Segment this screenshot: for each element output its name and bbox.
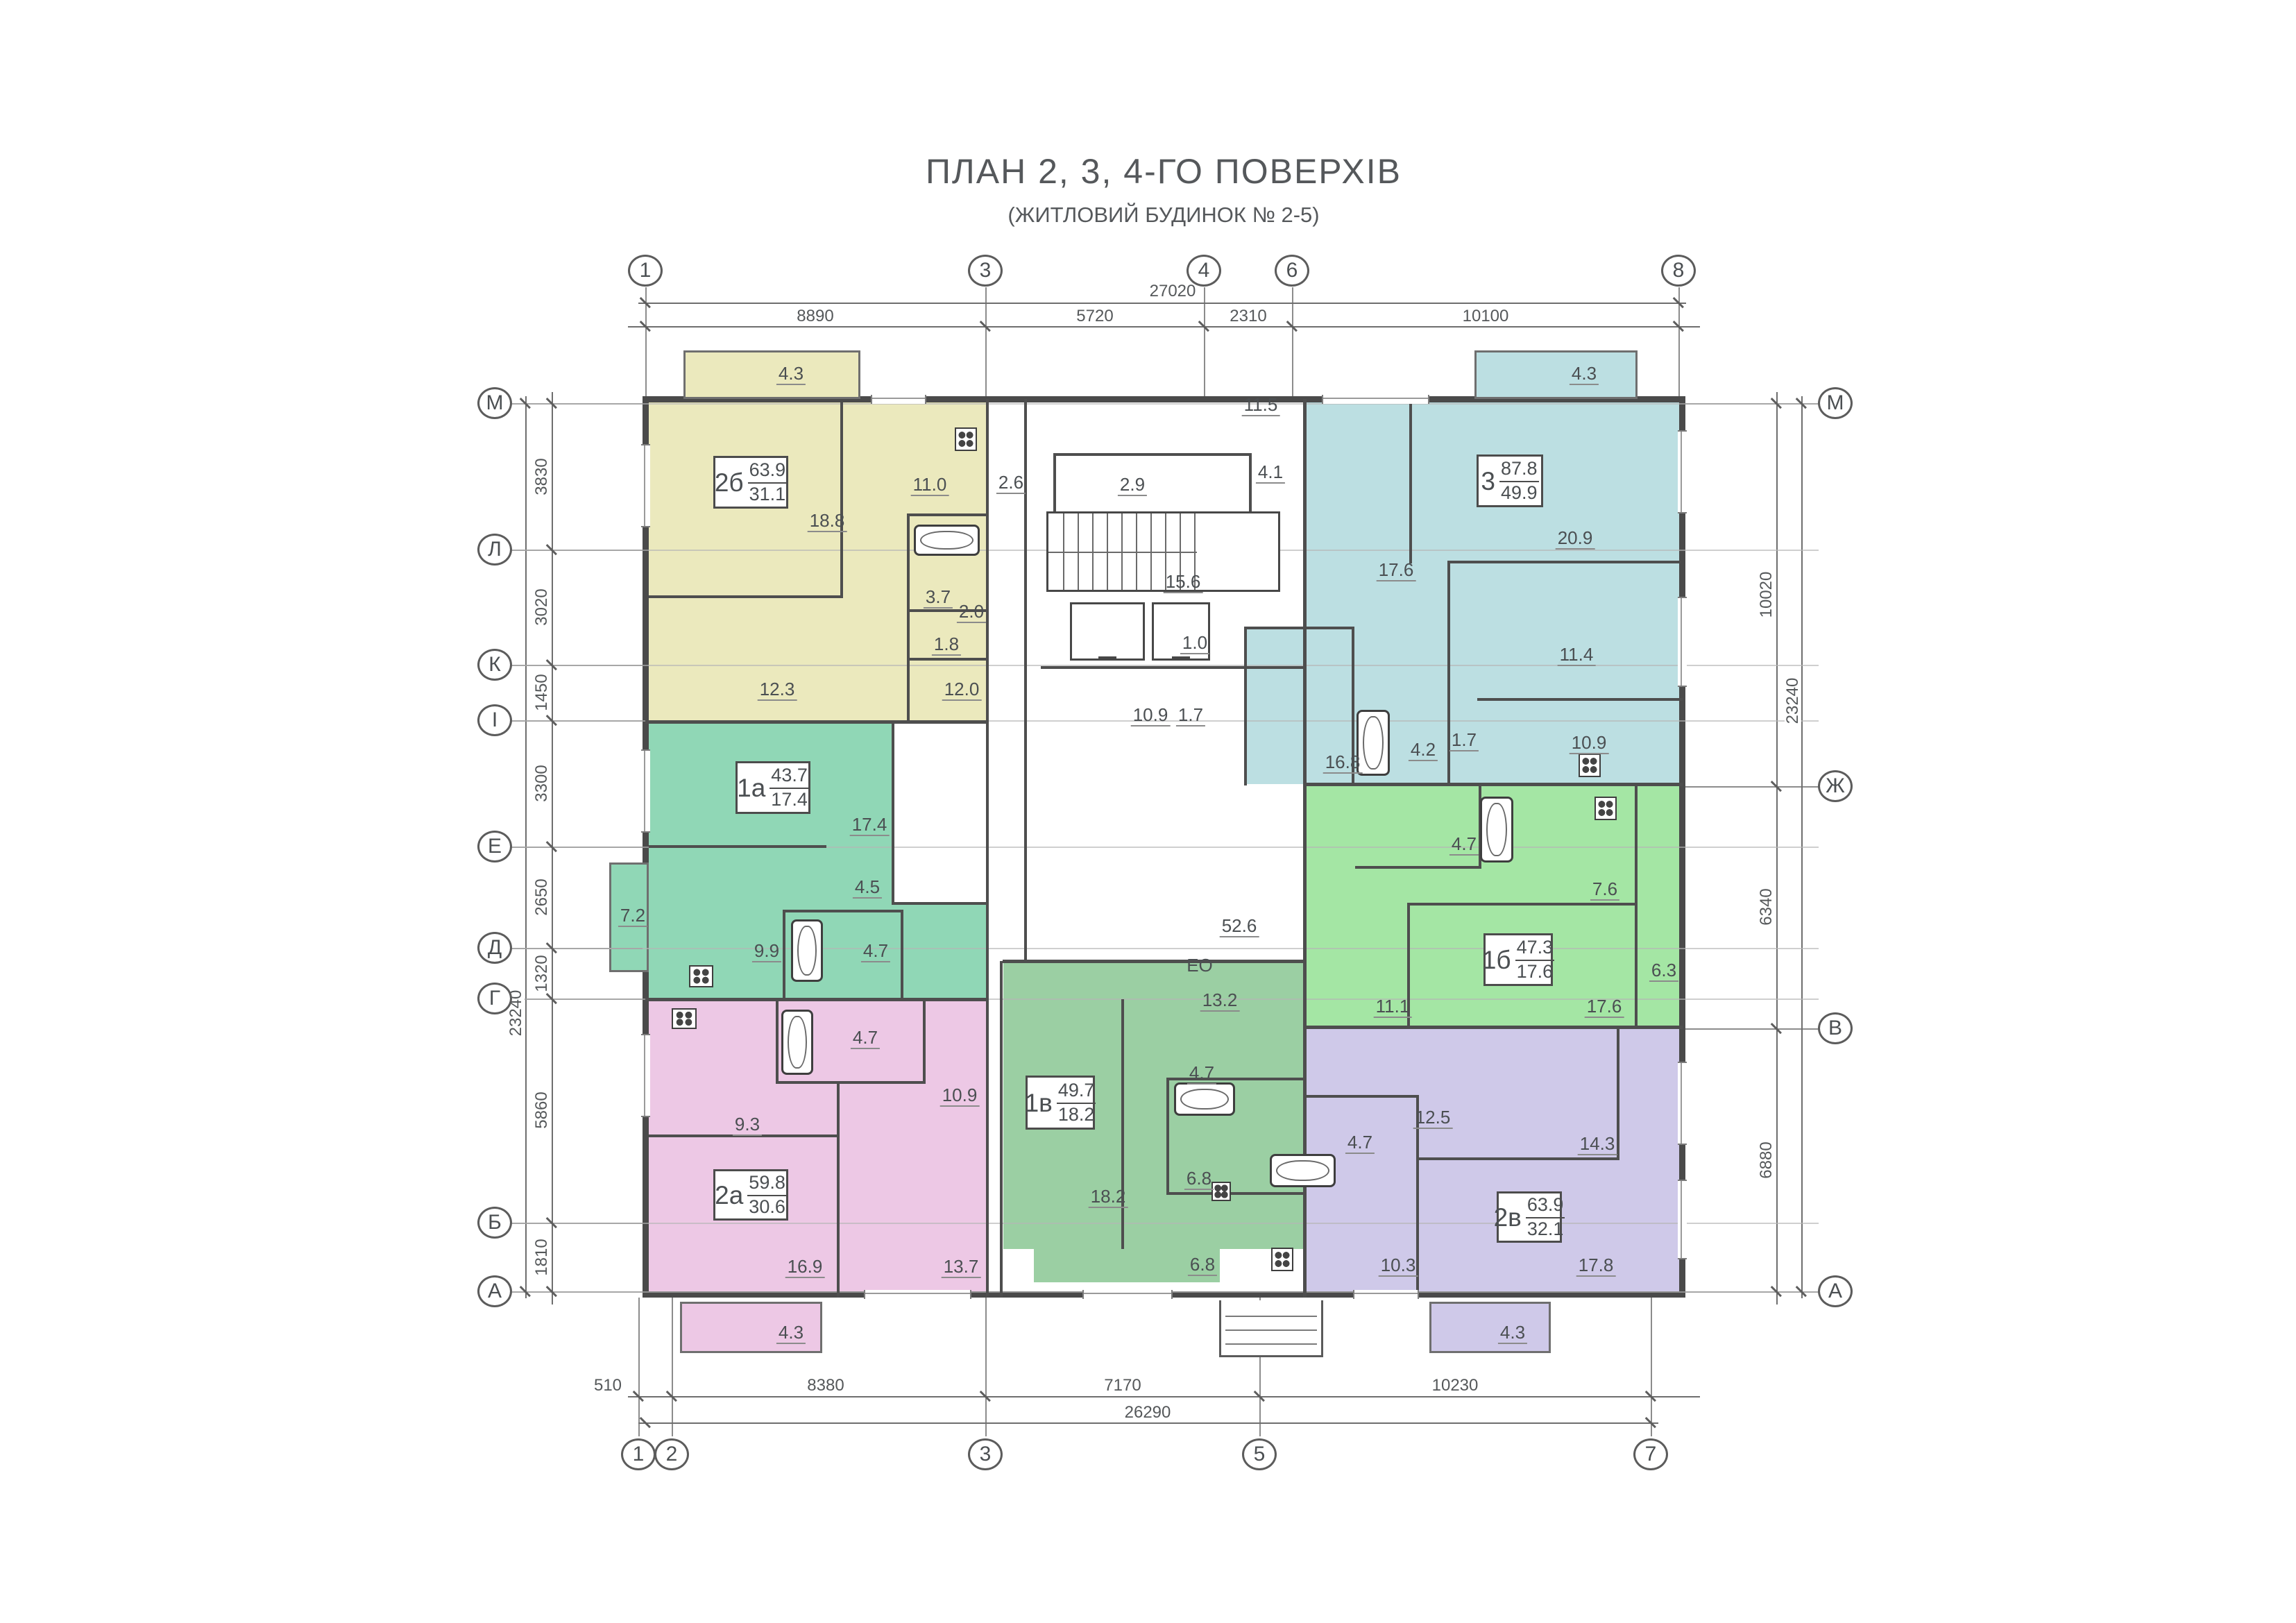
dim-line-top-segments: [628, 326, 1700, 328]
floor-plan-canvas: 4.34.34.34.37.218.811.03.71.82.012.312.0…: [0, 0, 2296, 1623]
axis-bubble-3: 3: [968, 1438, 1003, 1470]
room-area-label: 12.5: [1413, 1108, 1453, 1129]
dimension-label: 1320: [534, 953, 550, 994]
room-area-label: 6.8: [1184, 1169, 1214, 1190]
room-area-label: 2.6: [996, 473, 1026, 494]
wall: [1166, 1192, 1304, 1195]
wall: [1000, 961, 1003, 1298]
stair-landing-line: [1048, 552, 1197, 553]
room-area-label: 1.7: [1176, 706, 1205, 726]
wall: [649, 845, 826, 848]
dimension-label: 5720: [1074, 308, 1115, 325]
wall: [901, 910, 903, 1001]
room-area-label: 4.7: [1449, 835, 1479, 856]
wall: [907, 658, 989, 661]
room-area-label: 18.2: [1089, 1187, 1128, 1208]
room-area-label: 10.3: [1379, 1256, 1418, 1277]
room-area-label: 2.9: [1118, 475, 1147, 496]
stove-icon: [689, 965, 713, 987]
room-area-label: 9.9: [752, 942, 781, 962]
stove-icon: [1271, 1248, 1293, 1271]
room-area-label: 4.5: [853, 878, 882, 899]
wall: [1447, 561, 1681, 563]
wall: [1617, 1028, 1619, 1160]
apartment-code: 1б: [1482, 947, 1511, 973]
wall: [1307, 1095, 1419, 1098]
axis-bubble-Е: Е: [477, 831, 512, 863]
apartment-code: 2б: [715, 470, 744, 495]
dimension-label: 10230: [1430, 1377, 1481, 1394]
apt-3-area-ext: [1247, 629, 1309, 784]
axis-bubble-4: 4: [1187, 255, 1221, 287]
room-area-label: 4.7: [1187, 1064, 1216, 1085]
elevator-shaft: [1070, 602, 1145, 661]
dimension-label: 1450: [534, 672, 550, 713]
dim-line-top-total: [638, 303, 1686, 304]
room-area-label: 20.9: [1556, 529, 1595, 550]
axis-bubble-М: М: [1818, 387, 1853, 419]
room-area-label: 52.6: [1220, 917, 1259, 937]
room-area-label: 12.0: [942, 680, 982, 701]
axis-stub: [1651, 1298, 1652, 1436]
dimension-label: 3830: [534, 456, 550, 497]
wall: [1407, 903, 1636, 906]
wall: [892, 902, 989, 905]
room-area-label: 11.0: [911, 475, 949, 496]
bathtub-icon: [1174, 1082, 1235, 1116]
room-area-label: 10.9: [1131, 706, 1171, 726]
wall: [837, 1081, 840, 1298]
apartment-label-2а: 2а59.830.6: [713, 1169, 788, 1221]
room-area-label: 14.3: [1578, 1135, 1617, 1155]
room-area-label: 1.7: [1449, 731, 1479, 751]
apt-2b-area: [649, 402, 987, 722]
axis-bubble-8: 8: [1661, 255, 1696, 287]
wall: [776, 1001, 779, 1084]
axis-line-Б: [511, 1223, 1819, 1224]
axis-bubble-Д: Д: [477, 932, 512, 964]
axis-stub: [985, 1298, 987, 1436]
bathtub-icon: [791, 919, 823, 982]
dimension-label: 7170: [1102, 1377, 1143, 1394]
axis-bubble-2: 2: [654, 1438, 689, 1470]
axis-bubble-5: 5: [1242, 1438, 1277, 1470]
dimension-label: 3300: [534, 763, 550, 804]
dimension-label: 3020: [534, 586, 550, 627]
room-area-label: 16.9: [785, 1257, 825, 1278]
dimension-label: 10100: [1461, 308, 1511, 325]
drawing-sheet: { "page": { "title": "ПЛАН 2, 3, 4-ГО ПО…: [0, 0, 2296, 1623]
room-area-label: 6.3: [1649, 961, 1678, 982]
dimension-label: 2650: [534, 876, 550, 917]
wall: [840, 402, 843, 598]
room-area-label: 4.2: [1409, 740, 1438, 761]
room-area-label: 17.6: [1377, 561, 1416, 581]
wall: [907, 513, 989, 516]
axis-bubble-7: 7: [1633, 1438, 1668, 1470]
room-area-label: 11.4: [1558, 645, 1596, 666]
wall: [1307, 1026, 1683, 1029]
room-area-label: 11.1: [1374, 997, 1412, 1018]
axis-bubble-Ж: Ж: [1818, 770, 1853, 802]
axis-bubble-1: 1: [621, 1438, 656, 1470]
balcony-area-label: 4.3: [776, 364, 806, 385]
wall: [1249, 453, 1252, 511]
apartment-label-1в: 1в49.718.2: [1026, 1076, 1095, 1130]
dimension-label: 510: [592, 1377, 624, 1394]
axis-bubble-3: 3: [968, 255, 1003, 287]
bathtub-icon: [1270, 1154, 1336, 1187]
room-area-label: 17.8: [1576, 1256, 1616, 1277]
apartment-areas: 47.317.6: [1515, 937, 1555, 982]
axis-bubble-М: М: [477, 387, 512, 419]
stove-icon: [1211, 1182, 1231, 1201]
balcony-area-label: 4.3: [1498, 1323, 1527, 1344]
wall: [1244, 627, 1354, 629]
bathtub-icon: [1480, 797, 1513, 863]
apartment-label-1б: 1б47.317.6: [1483, 933, 1553, 986]
apartment-areas: 63.932.1: [1526, 1194, 1565, 1239]
axis-stub: [672, 1298, 673, 1436]
dimension-label: 23240: [1785, 676, 1801, 726]
dimension-label: 5860: [534, 1089, 550, 1130]
axis-line-М: [511, 403, 1819, 405]
axis-bubble-А: А: [477, 1275, 512, 1307]
bathtub-icon: [914, 525, 980, 556]
dim-line-bottom-total: [638, 1422, 1658, 1424]
room-area-label: 9.3: [733, 1115, 762, 1136]
apartment-areas: 49.718.2: [1057, 1080, 1096, 1125]
apartment-code: 2а: [715, 1182, 743, 1208]
wall: [1244, 627, 1247, 785]
wall: [1166, 1078, 1169, 1195]
balcony-area-label: 4.3: [1570, 364, 1599, 385]
room-area-label: 4.7: [1345, 1133, 1375, 1154]
dimension-label: 6340: [1758, 886, 1775, 927]
room-area-label: ЕО: [1184, 956, 1215, 976]
wall: [1121, 999, 1124, 1249]
room-area-label: 18.8: [808, 511, 847, 532]
axis-stub: [1685, 786, 1819, 788]
window: [1353, 1290, 1419, 1299]
axis-bubble-В: В: [1818, 1012, 1853, 1044]
room-area-label: 7.6: [1590, 880, 1619, 901]
stove-icon: [672, 1008, 697, 1029]
wall: [783, 910, 785, 1001]
wall: [649, 595, 843, 598]
stove-icon: [1579, 754, 1601, 777]
wall: [1041, 666, 1304, 669]
axis-bubble-К: К: [477, 649, 512, 681]
axis-bubble-1: 1: [628, 255, 663, 287]
entrance-porch: [1219, 1300, 1323, 1357]
wall: [986, 399, 989, 1298]
apartment-label-1а: 1а43.717.4: [735, 761, 810, 814]
dimension-label: 6880: [1758, 1139, 1775, 1180]
room-area-label: 4.7: [861, 942, 890, 962]
room-area-label: 10.9: [1570, 733, 1609, 754]
axis-bubble-Л: Л: [477, 534, 512, 566]
window: [864, 1290, 971, 1299]
wall: [1053, 453, 1056, 511]
room-area-label: 13.7: [942, 1257, 981, 1278]
wall: [1355, 866, 1481, 869]
window: [1678, 1180, 1687, 1259]
window: [1322, 395, 1429, 404]
window: [1678, 430, 1687, 513]
stove-icon: [1595, 797, 1617, 820]
room-area-label: 4.7: [851, 1028, 880, 1049]
wall: [645, 998, 989, 1001]
balcony-2v: [1429, 1302, 1551, 1353]
wall: [776, 1081, 924, 1084]
wall: [783, 910, 903, 912]
dimension-label: 8890: [794, 308, 835, 325]
balcony-area-label: 4.3: [776, 1323, 806, 1344]
wall: [923, 1001, 926, 1084]
room-area-label: 17.6: [1585, 997, 1624, 1018]
room-area-label: 15.6: [1164, 572, 1203, 593]
window: [1678, 1062, 1687, 1145]
wall: [907, 513, 910, 722]
wall: [1416, 1157, 1619, 1160]
dimension-label: 2310: [1227, 308, 1268, 325]
axis-bubble-Б: Б: [477, 1207, 512, 1239]
apartment-label-2в: 2в63.932.1: [1497, 1191, 1562, 1243]
axis-line-Д: [511, 948, 1819, 949]
dimension-label: 26290: [1123, 1404, 1173, 1421]
dim-line-right-segments: [1776, 392, 1778, 1305]
axis-bubble-Г: Г: [477, 983, 512, 1014]
apartment-areas: 63.931.1: [748, 459, 788, 504]
room-area-label: 17.4: [850, 815, 890, 836]
dimension-label: 8380: [805, 1377, 846, 1394]
apartment-areas: 87.849.9: [1499, 458, 1539, 503]
apartment-code: 2в: [1494, 1205, 1522, 1230]
wall: [1635, 786, 1638, 1028]
axis-bubble-А: А: [1818, 1275, 1853, 1307]
apartment-areas: 59.830.6: [747, 1172, 787, 1217]
room-area-label: 1.0: [1180, 634, 1209, 654]
window: [641, 444, 650, 527]
window: [1082, 1290, 1173, 1299]
wall: [1055, 453, 1250, 456]
wall: [645, 720, 989, 724]
room-area-label: 3.7: [924, 588, 953, 609]
apartment-code: 3: [1481, 468, 1495, 494]
room-area-label: 11.5: [1242, 396, 1280, 416]
window: [641, 749, 650, 833]
dimension-label: 27020: [1148, 283, 1198, 300]
balcony-area-label: 7.2: [618, 906, 647, 927]
dim-line-bottom-segments: [628, 1396, 1700, 1397]
room-area-label: 6.8: [1188, 1255, 1217, 1276]
window: [871, 395, 926, 404]
apartment-code: 1а: [737, 775, 765, 801]
axis-bubble-І: І: [477, 704, 512, 736]
apartment-label-2б: 2б63.931.1: [713, 456, 788, 509]
apartment-code: 1в: [1025, 1090, 1053, 1116]
axis-bubble-6: 6: [1275, 255, 1309, 287]
wall: [892, 720, 894, 905]
room-area-label: 16.8: [1323, 753, 1363, 774]
window: [641, 1034, 650, 1117]
wall: [1409, 402, 1412, 563]
axis-stub: [1685, 1028, 1819, 1030]
apt-1a-area-ext: [892, 905, 987, 998]
room-area-label: 2.0: [957, 602, 986, 623]
dimension-label: 10020: [1758, 570, 1775, 620]
apartment-label-3: 387.849.9: [1477, 454, 1543, 507]
wall: [1003, 960, 1304, 963]
apt-2a-area: [649, 1001, 987, 1291]
balcony-2b: [683, 350, 860, 399]
apartment-areas: 43.717.4: [769, 765, 809, 810]
room-area-label: 4.1: [1256, 463, 1285, 484]
window: [1678, 597, 1687, 687]
dimension-label: 1810: [534, 1237, 550, 1277]
room-area-label: 13.2: [1200, 991, 1240, 1012]
axis-stub: [638, 1298, 640, 1436]
wall: [1307, 783, 1683, 786]
bathtub-icon: [781, 1010, 813, 1075]
wall: [1477, 698, 1683, 701]
room-area-label: 1.8: [932, 635, 961, 656]
room-area-label: 10.9: [940, 1086, 980, 1107]
stove-icon: [955, 427, 977, 451]
balcony-3: [1474, 350, 1638, 399]
room-area-label: 12.3: [758, 680, 797, 701]
